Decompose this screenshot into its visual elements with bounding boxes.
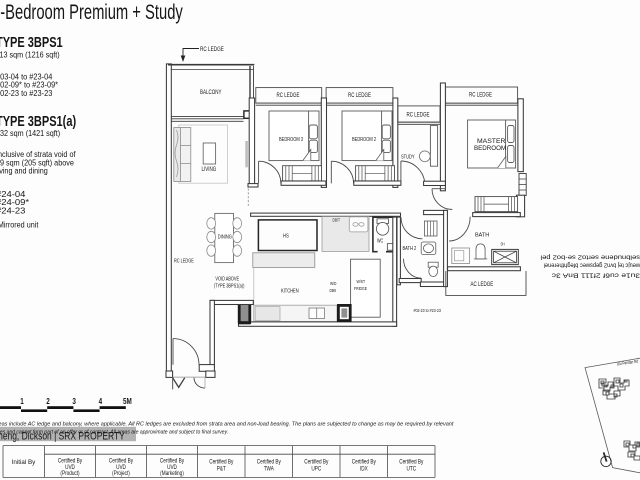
svg-text:(Project): (Project) xyxy=(112,471,130,478)
svg-text:132 sqm (1421 sqft): 132 sqm (1421 sqft) xyxy=(0,128,61,138)
svg-text:3-Bedroom Premium + Study: 3-Bedroom Premium + Study xyxy=(0,0,183,24)
svg-text:TYPE 3BPS1(a): TYPE 3BPS1(a) xyxy=(0,112,76,129)
svg-text:KITCHEN: KITCHEN xyxy=(281,288,299,295)
svg-text:P&T: P&T xyxy=(217,466,227,473)
svg-text:VOID ABOVE: VOID ABOVE xyxy=(215,276,239,282)
svg-text:1: 1 xyxy=(20,396,24,406)
svg-text:BATH 2: BATH 2 xyxy=(403,245,417,252)
svg-text:TWA: TWA xyxy=(264,466,275,473)
svg-text:BEDROOM 2: BEDROOM 2 xyxy=(352,136,376,143)
svg-text:RC LEDGE: RC LEDGE xyxy=(277,92,300,99)
svg-text:Certified By: Certified By xyxy=(257,459,281,466)
svg-text:Certified By: Certified By xyxy=(209,459,233,466)
svg-text:UTC: UTC xyxy=(406,466,416,473)
svg-text:2: 2 xyxy=(46,396,50,406)
svg-text:living and dining: living and dining xyxy=(0,166,48,176)
svg-text:Ulu Pandan Rd: Ulu Pandan Rd xyxy=(617,359,639,367)
svg-text:4: 4 xyxy=(99,396,103,406)
svg-text:BEDROOM: BEDROOM xyxy=(474,145,506,152)
svg-text:DB8: DB8 xyxy=(330,287,337,293)
svg-text:SH: SH xyxy=(501,242,505,247)
svg-text:Certified By: Certified By xyxy=(304,459,328,466)
svg-text:DB/T: DB/T xyxy=(333,217,341,223)
svg-text:#24-23: #24-23 xyxy=(0,206,25,216)
svg-text:BATH: BATH xyxy=(475,232,489,238)
svg-text:Certified By: Certified By xyxy=(399,459,423,466)
svg-text:authorities and cannot form pa: authorities and cannot form part of an o… xyxy=(0,429,228,435)
svg-text:TYPE 3BPS1: TYPE 3BPS1 xyxy=(0,33,63,50)
svg-text:(Marketing): (Marketing) xyxy=(160,471,184,478)
svg-text:DINING: DINING xyxy=(218,234,232,241)
svg-text:FRIDGE: FRIDGE xyxy=(354,285,367,291)
svg-text:RC LEDGE: RC LEDGE xyxy=(407,112,430,119)
svg-text:#02-23 to #23-23: #02-23 to #23-23 xyxy=(414,307,442,313)
svg-text:AC LEDGE: AC LEDGE xyxy=(471,281,494,288)
svg-text:STUDY: STUDY xyxy=(401,154,415,161)
svg-text:3u1e cu6f 2f111 BnA 3c: 3u1e cu6f 2f111 BnA 3c xyxy=(551,272,640,280)
svg-text:RC LEDGE: RC LEDGE xyxy=(348,92,371,99)
svg-text:RC LEDGE: RC LEDGE xyxy=(469,92,492,99)
svg-text:Initial By: Initial By xyxy=(12,459,36,466)
svg-text:Certified By: Certified By xyxy=(352,459,376,466)
svg-text:5M: 5M xyxy=(123,396,132,406)
svg-text:UPC: UPC xyxy=(311,466,321,473)
svg-text:IDX: IDX xyxy=(360,466,368,473)
svg-text:BALCONY: BALCONY xyxy=(200,89,222,96)
svg-text:RC LEDGE: RC LEDGE xyxy=(200,47,224,54)
svg-text:3: 3 xyxy=(72,396,76,406)
svg-text:LIVING: LIVING xyxy=(202,166,217,173)
svg-text:selbnudene serto2 se-bo2 pe: selbnudene serto2 se-bo2 pel xyxy=(540,254,640,260)
svg-text:RC LEDGE: RC LEDGE xyxy=(174,258,194,264)
svg-text:* Mirrored unit: * Mirrored unit xyxy=(0,220,39,230)
svg-text:113 sqm (1216 sqft): 113 sqm (1216 sqft) xyxy=(0,50,60,60)
svg-text:BEDROOM 3: BEDROOM 3 xyxy=(279,136,303,143)
svg-text:#02-23 to #23-23: #02-23 to #23-23 xyxy=(0,88,53,98)
svg-text:All areas include AC ledge and: All areas include AC ledge and balcony, … xyxy=(0,422,454,428)
svg-text:W/ST: W/ST xyxy=(357,278,366,284)
svg-text:W/D: W/D xyxy=(330,280,337,286)
svg-text:(Product): (Product) xyxy=(60,471,79,478)
svg-text:WC: WC xyxy=(377,238,384,244)
svg-text:weujc tej bvn2 gepswec bfeghth: weujc tej bvn2 gepswec bfeghtherenel xyxy=(544,261,640,267)
svg-text:(TYPE 3BPS1(a)): (TYPE 3BPS1(a)) xyxy=(214,283,245,289)
svg-text:HS: HS xyxy=(283,233,289,240)
